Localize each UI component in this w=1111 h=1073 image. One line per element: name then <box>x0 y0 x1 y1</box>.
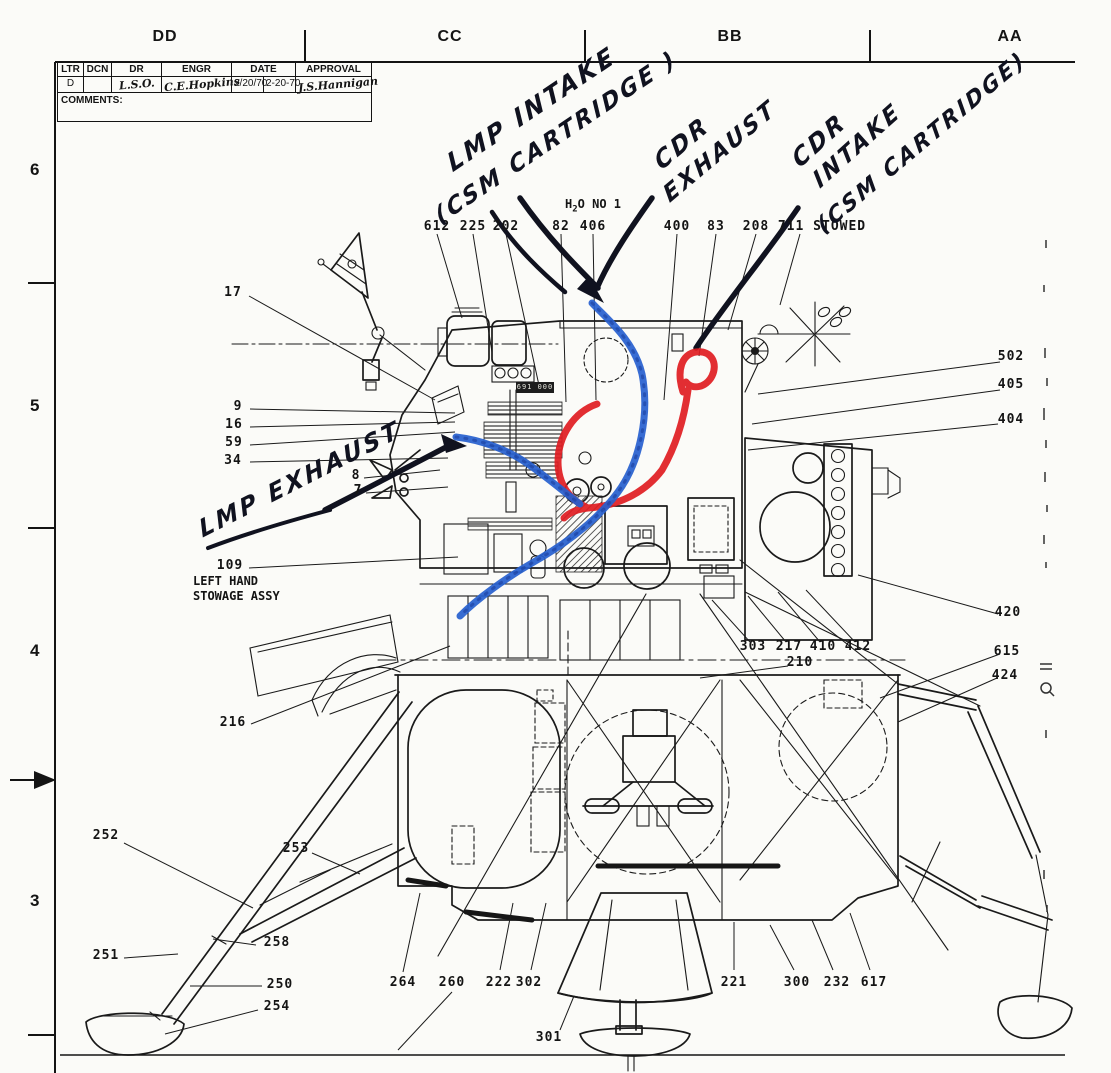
title-block-value-approval: J.S.Hannigan <box>296 77 371 92</box>
title-block: LTR DCN DR ENGR DATE APPROVAL D L.S.O. C… <box>57 62 372 122</box>
title-block-value-engr: C.E.Hopkins <box>162 77 232 92</box>
placard-chip: 691 000 <box>516 382 554 393</box>
h2o-label: H2O NO 1 <box>565 197 621 214</box>
lm-engineering-drawing: { "grid": { "top_labels": [ {"t":"DD","x… <box>0 0 1111 1073</box>
title-block-header-engr: ENGR <box>162 63 232 76</box>
drawing-linework <box>0 0 1111 1073</box>
title-block-header-date: DATE <box>232 63 296 76</box>
blue-marker-hoses <box>456 303 645 616</box>
title-block-header-ltr: LTR <box>58 63 84 76</box>
title-block-header-approval: APPROVAL <box>296 63 371 76</box>
title-block-header-dcn: DCN <box>84 63 112 76</box>
title-block-value-dr: L.S.O. <box>112 77 162 92</box>
title-block-value-ltr: D <box>58 77 84 92</box>
scan-artifacts <box>1040 240 1054 912</box>
drawing-sheet: LTR DCN DR ENGR DATE APPROVAL D L.S.O. C… <box>0 0 1111 1073</box>
title-block-header-dr: DR <box>112 63 162 76</box>
zone-pointer-arrow <box>34 771 56 789</box>
left-hand-stowage-label: LEFT HAND STOWAGE ASSY <box>193 574 280 604</box>
comments-label: COMMENTS: <box>58 93 371 121</box>
title-block-value-dcn <box>84 77 112 92</box>
marker-black-leaders <box>208 198 798 548</box>
red-marker-hoses <box>558 352 714 518</box>
title-block-value-date2: 2-20-70 <box>264 77 296 92</box>
